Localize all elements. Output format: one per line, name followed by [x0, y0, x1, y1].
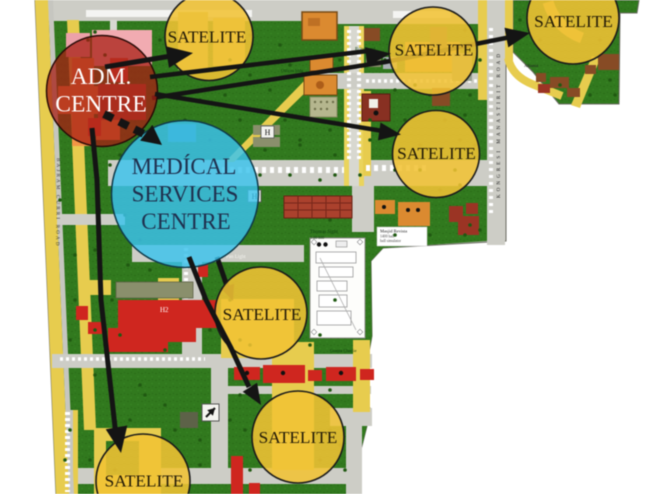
svg-text:SATELITE: SATELITE	[395, 41, 474, 60]
svg-text:hall simulator: hall simulator	[380, 239, 402, 243]
svg-text:SERVICES: SERVICES	[132, 182, 239, 207]
svg-text:ADM.: ADM.	[71, 64, 132, 90]
svg-text:SATELITE: SATELITE	[168, 28, 247, 47]
svg-text:Albania: Albania	[524, 63, 538, 68]
svg-text:KONGRESI MANASTIRIT ROAD: KONGRESI MANASTIRIT ROAD	[497, 51, 502, 198]
svg-text:Offices bldg: Offices bldg	[281, 68, 304, 73]
svg-text:SATELITE: SATELITE	[397, 144, 476, 163]
svg-text:SATELITE: SATELITE	[105, 472, 184, 491]
svg-text:BAJRAM CURRI ROAD: BAJRAM CURRI ROAD	[54, 158, 60, 248]
svg-text:MEDÍCAL: MEDÍCAL	[132, 154, 237, 179]
svg-text:1400 hall: 1400 hall	[380, 235, 394, 239]
svg-text:Masjid Revista: Masjid Revista	[380, 229, 407, 234]
svg-text:CENTRE: CENTRE	[141, 209, 230, 234]
svg-text:Pan Light: Pan Light	[226, 255, 246, 260]
svg-text:1:00 800: 1:00 800	[310, 235, 324, 240]
svg-text:Granta Charlie: Granta Charlie	[330, 348, 357, 353]
svg-text:CENTRE: CENTRE	[55, 92, 146, 118]
svg-text:SATELITE: SATELITE	[534, 12, 613, 31]
svg-text:SATELITE: SATELITE	[259, 428, 338, 447]
svg-text:SATELITE: SATELITE	[223, 305, 302, 324]
svg-text:H2: H2	[160, 306, 169, 314]
svg-text:H: H	[265, 128, 271, 137]
